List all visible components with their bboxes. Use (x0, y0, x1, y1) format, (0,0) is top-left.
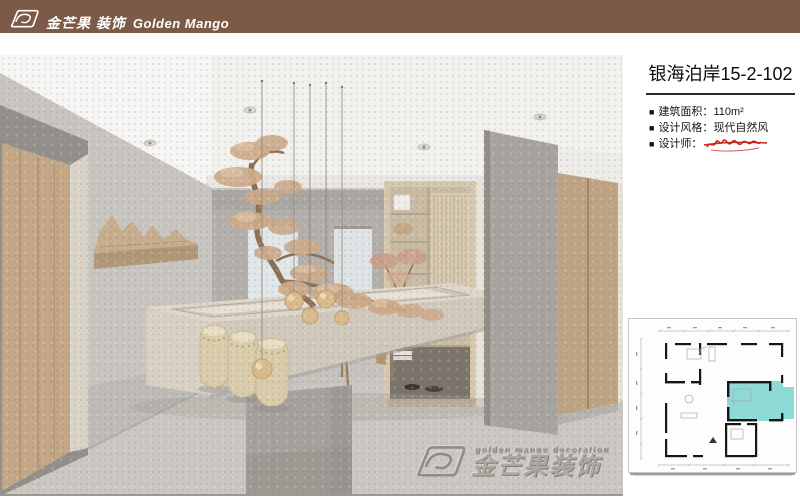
floor-plan-drawing (629, 319, 796, 472)
floor-plan-thumbnail (628, 318, 797, 473)
watermark-text-zh: 金芒果装饰 (471, 454, 601, 479)
project-title: 银海泊岸15-2-102 (645, 60, 796, 86)
spec-value: 110m² (713, 104, 743, 120)
presentation-page: 金芒果 装饰 Golden Mango (0, 0, 800, 500)
spec-label: 建筑面积： (658, 104, 713, 120)
watermark-logo-icon (414, 443, 466, 479)
spec-label: 设计风格： (658, 120, 713, 136)
floor-watermark: golden mango decoration 金芒果装饰 (414, 443, 610, 479)
interior-scene-graphic (0, 55, 623, 496)
render-bottom-edge (0, 494, 623, 496)
title-divider (646, 93, 795, 95)
spec-value: 现代自然风 (713, 120, 768, 136)
spec-label: 设计师： (658, 136, 702, 152)
interior-render-photo: golden mango decoration 金芒果装饰 (0, 55, 623, 496)
info-panel: 银海泊岸15-2-102 ■ 建筑面积： 110m² ■ 设计风格： 现代自然风… (623, 33, 800, 500)
spec-list: ■ 建筑面积： 110m² ■ 设计风格： 现代自然风 ■ 设计师： (649, 104, 800, 152)
header-bar: 金芒果 装饰 Golden Mango (0, 0, 800, 33)
right-wall-column (484, 130, 558, 435)
plan-entry-marker (709, 437, 717, 443)
designer-signature-icon (703, 136, 769, 152)
bullet-square-icon: ■ (649, 104, 654, 120)
brand-name-en: Golden Mango (133, 17, 229, 30)
wood-door-right (558, 147, 623, 425)
spec-row-area: ■ 建筑面积： 110m² (649, 104, 800, 120)
brand-name-zh: 金芒果 装饰 (46, 16, 126, 30)
left-doorway (0, 105, 88, 496)
bullet-square-icon: ■ (649, 136, 654, 152)
spec-row-style: ■ 设计风格： 现代自然风 (649, 120, 800, 136)
brand-logo-icon (9, 8, 39, 29)
bullet-square-icon: ■ (649, 120, 654, 136)
spec-row-designer: ■ 设计师： (649, 136, 800, 152)
